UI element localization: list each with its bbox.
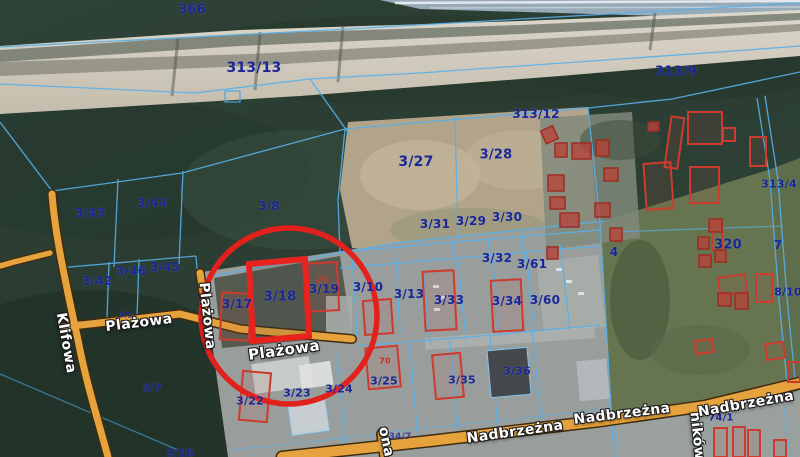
map-viewport[interactable]: 366313/13313/9313/123/433/443/83/423/463… (0, 0, 800, 457)
highlighted-parcel-outline (249, 259, 309, 341)
map-graphics (0, 0, 800, 457)
terrain-layer (0, 0, 800, 457)
